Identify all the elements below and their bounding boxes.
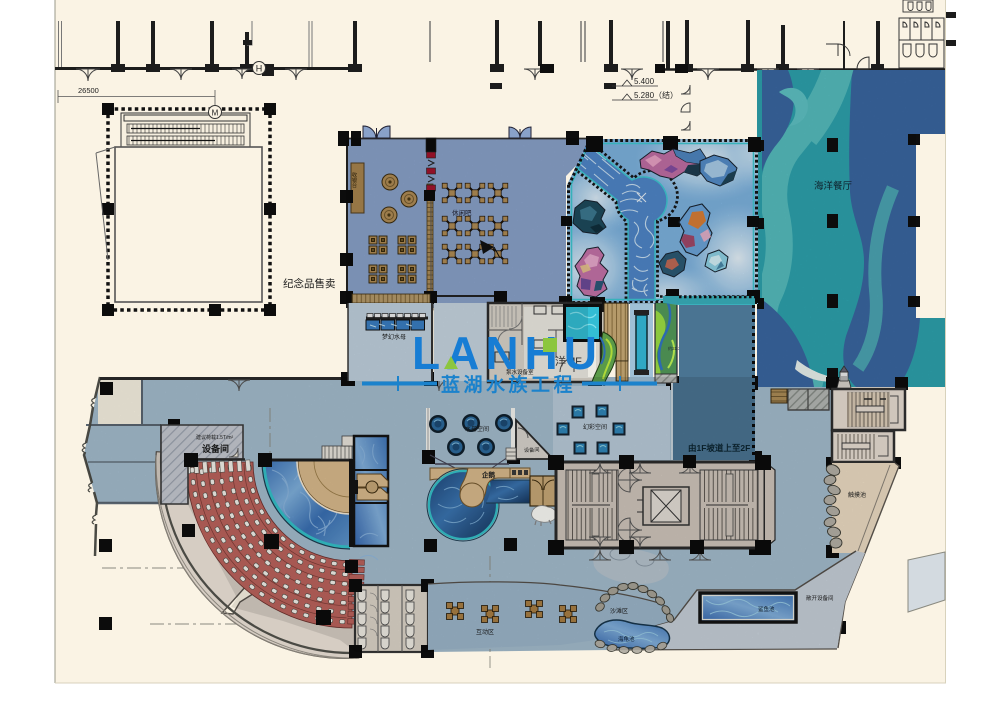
svg-text:26500: 26500: [78, 86, 99, 95]
svg-text:M: M: [212, 109, 219, 118]
svg-text:H: H: [256, 64, 263, 74]
svg-text:纪念品售卖: 纪念品售卖: [283, 277, 336, 290]
svg-text:5.280（结）: 5.280（结）: [634, 90, 678, 100]
svg-text:5.400: 5.400: [634, 77, 655, 86]
svg-text:蓝湖水族工程: 蓝湖水族工程: [441, 373, 576, 396]
